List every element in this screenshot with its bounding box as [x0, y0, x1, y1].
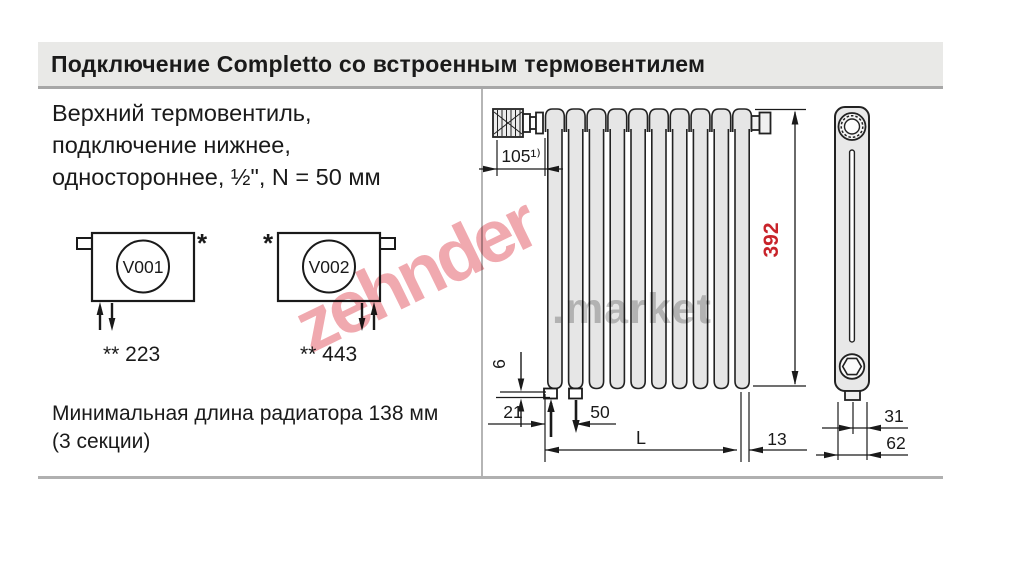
technical-drawing: V001 * ** 223 V002 * ** 443	[0, 0, 1018, 576]
flow-out-arrow-icon	[109, 318, 116, 331]
valve-code-v002: V002	[309, 257, 350, 277]
thermostatic-valve	[493, 109, 543, 137]
datasheet-page: Подключение Completto со встроенным терм…	[0, 0, 1018, 576]
scheme-v002: V002 * ** 443	[263, 228, 395, 366]
dim-label-21: 21	[503, 402, 522, 422]
dim-label-6: 6	[489, 359, 509, 369]
flow-in-arrow-icon	[371, 302, 378, 315]
dimension-50: 50	[576, 402, 616, 427]
right-top-fitting	[752, 113, 771, 134]
flow-out-arrow-icon	[359, 318, 366, 331]
dim-label-62: 62	[886, 433, 905, 453]
dimension-13: 13	[749, 429, 807, 453]
valve-code-v001: V001	[123, 257, 164, 277]
dim-label-105: 105¹⁾	[501, 146, 540, 166]
flow-in-arrow-icon	[97, 302, 104, 315]
dim-label-50: 50	[590, 402, 610, 422]
dim-label-13: 13	[767, 429, 786, 449]
dim-label-392: 392	[760, 222, 783, 257]
radiator-front-view	[544, 109, 752, 399]
flow-in-arrow-icon	[547, 399, 554, 412]
bottom-nipple	[845, 391, 860, 400]
dim-label-L: L	[636, 428, 646, 448]
scheme-v001: V001 * ** 223	[77, 228, 208, 366]
flow-out-arrow-icon	[572, 420, 579, 433]
dimension-21: 21	[488, 402, 545, 427]
bottom-connection-2	[569, 389, 582, 399]
side-slot	[850, 150, 855, 342]
radiator-side-view	[835, 107, 869, 400]
dimension-62: 62	[816, 433, 908, 458]
flow-arrows	[547, 399, 579, 437]
note-star-v002: *	[263, 228, 274, 258]
dimension-height-392: 392	[753, 110, 806, 387]
dim-label-31: 31	[884, 406, 903, 426]
value-v002: ** 443	[300, 343, 357, 366]
value-v001: ** 223	[103, 343, 160, 366]
note-star-v001: *	[197, 228, 208, 258]
